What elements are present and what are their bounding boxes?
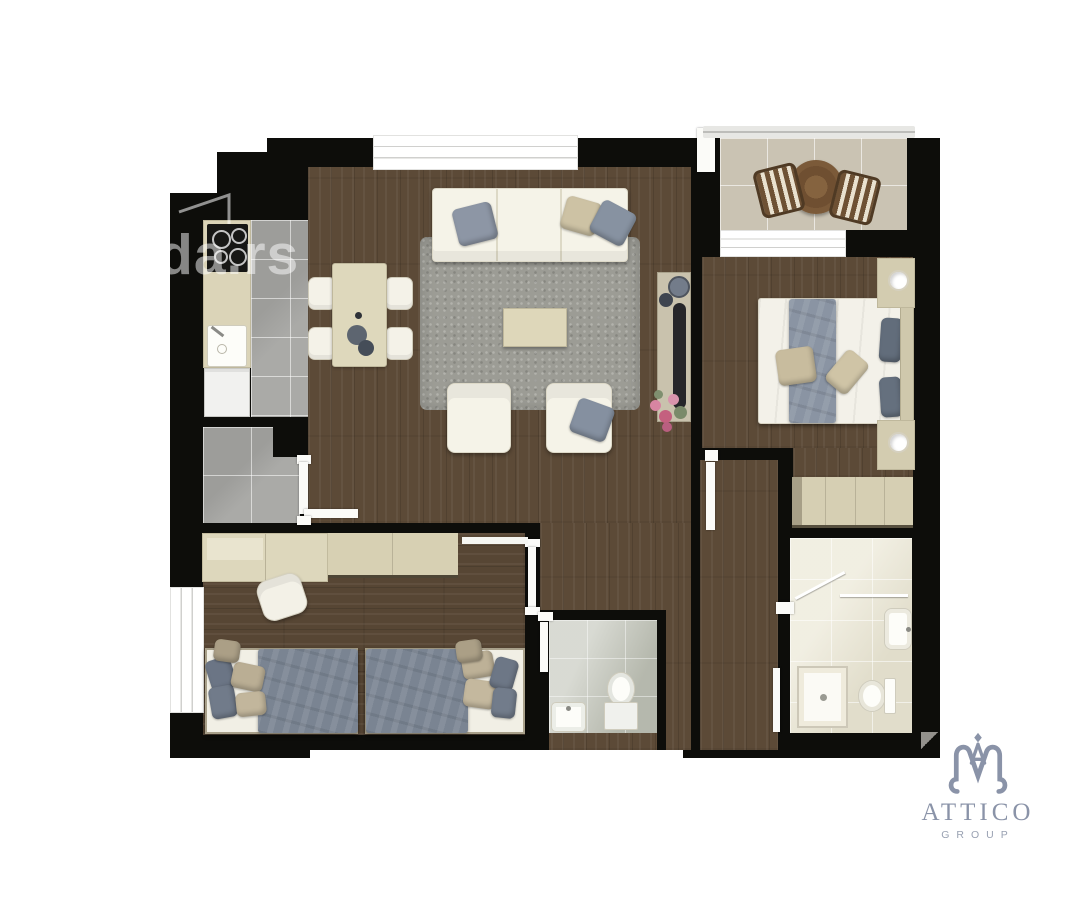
floor-plan: da.rs ATTICO GROUP [0,0,1089,900]
lamp-icon [888,432,909,453]
flowers [646,386,692,432]
entry-door-open-leaf [304,509,358,518]
faucet-icon [566,706,571,711]
master-bedroom-door-leaf [706,462,715,530]
attico-logo: ATTICO GROUP [918,731,1038,841]
bed-pillow [490,687,517,719]
brand-subtitle: GROUP [918,829,1038,841]
toilet [858,680,886,712]
bed-pillow [455,638,484,663]
bed-pillow [207,684,238,720]
attico-monogram-icon [942,731,1014,799]
entry-door-jamb [297,516,311,525]
headboard [900,293,914,428]
drain-icon [217,344,227,354]
master-bedroom-window [721,231,845,256]
wall [657,610,666,750]
bed-pillow [235,690,267,717]
duvet [258,649,358,733]
wc-door-leaf [540,622,548,672]
kitchen-sink [207,325,247,367]
dining-chair [385,277,413,310]
drain-icon [820,694,827,701]
washbasin [884,608,912,650]
washbasin [551,702,586,732]
toilet-tank [604,702,638,730]
towel-rail [840,594,908,597]
shower [797,666,848,728]
bathroom-door-leaf [773,668,780,732]
balcony-railing [703,126,915,138]
bed-pillow [213,638,242,663]
toilet-tank [884,678,896,714]
kitchen-appliance [204,368,250,417]
brand-name: ATTICO [918,799,1038,827]
shelf [462,537,528,544]
lamp-icon [888,270,909,291]
faucet-icon [906,627,911,632]
faucet-icon [211,326,225,338]
coffee-table [503,308,567,347]
table-decor [355,312,362,319]
wall [273,417,300,457]
wall [536,610,666,620]
bed-pillow [775,346,818,387]
kids-bedroom-door-leaf [528,547,536,607]
wc-door-jamb [538,612,553,621]
kids-bedroom-window [171,588,203,712]
table-decor [358,340,374,356]
toilet [607,672,635,706]
wardrobe [792,477,913,528]
speaker-icon [659,293,673,307]
bathroom-door-jamb [776,602,794,614]
master-bedroom-door-jamb [705,450,718,461]
watermark: da.rs [158,222,299,288]
dining-chair [385,327,413,360]
armchair [447,383,511,453]
duvet [366,649,468,733]
desk [202,533,328,582]
entry-door-leaf [299,462,308,514]
living-room-window [374,136,577,169]
cabinet [328,533,458,578]
